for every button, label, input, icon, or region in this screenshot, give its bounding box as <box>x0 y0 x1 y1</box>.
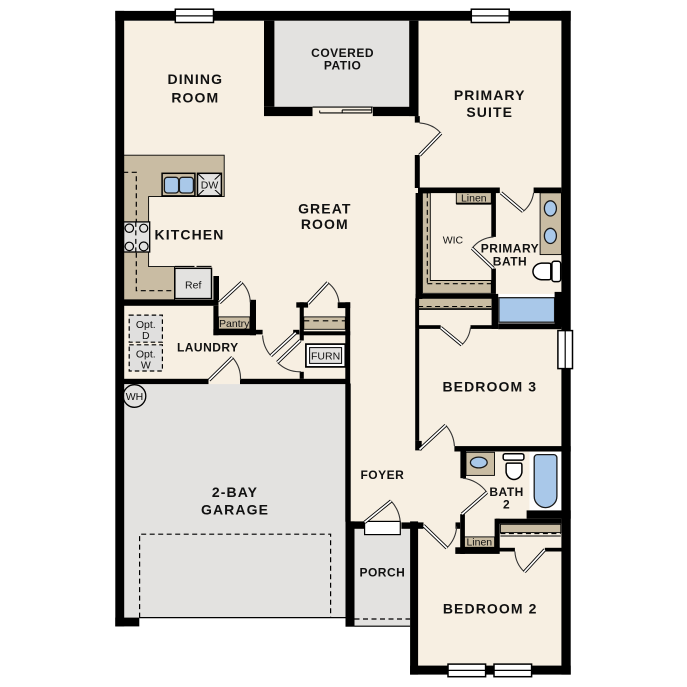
svg-text:Linen: Linen <box>466 537 492 549</box>
svg-text:Linen: Linen <box>461 192 487 204</box>
svg-text:D: D <box>142 330 150 342</box>
svg-text:BEDROOM 3: BEDROOM 3 <box>442 379 537 395</box>
svg-text:FURN: FURN <box>311 350 340 362</box>
svg-text:KITCHEN: KITCHEN <box>155 226 225 242</box>
svg-text:BEDROOM 2: BEDROOM 2 <box>443 600 538 616</box>
svg-text:W: W <box>141 360 151 372</box>
svg-text:Ref: Ref <box>185 279 201 291</box>
svg-text:WH: WH <box>126 391 144 403</box>
svg-text:WIC: WIC <box>443 235 464 247</box>
svg-text:GREATROOM: GREATROOM <box>298 200 351 232</box>
svg-text:FOYER: FOYER <box>360 468 404 482</box>
svg-text:DW: DW <box>201 180 219 192</box>
svg-text:PORCH: PORCH <box>359 565 405 579</box>
svg-text:Pantry: Pantry <box>219 318 250 330</box>
svg-text:LAUNDRY: LAUNDRY <box>177 340 239 354</box>
